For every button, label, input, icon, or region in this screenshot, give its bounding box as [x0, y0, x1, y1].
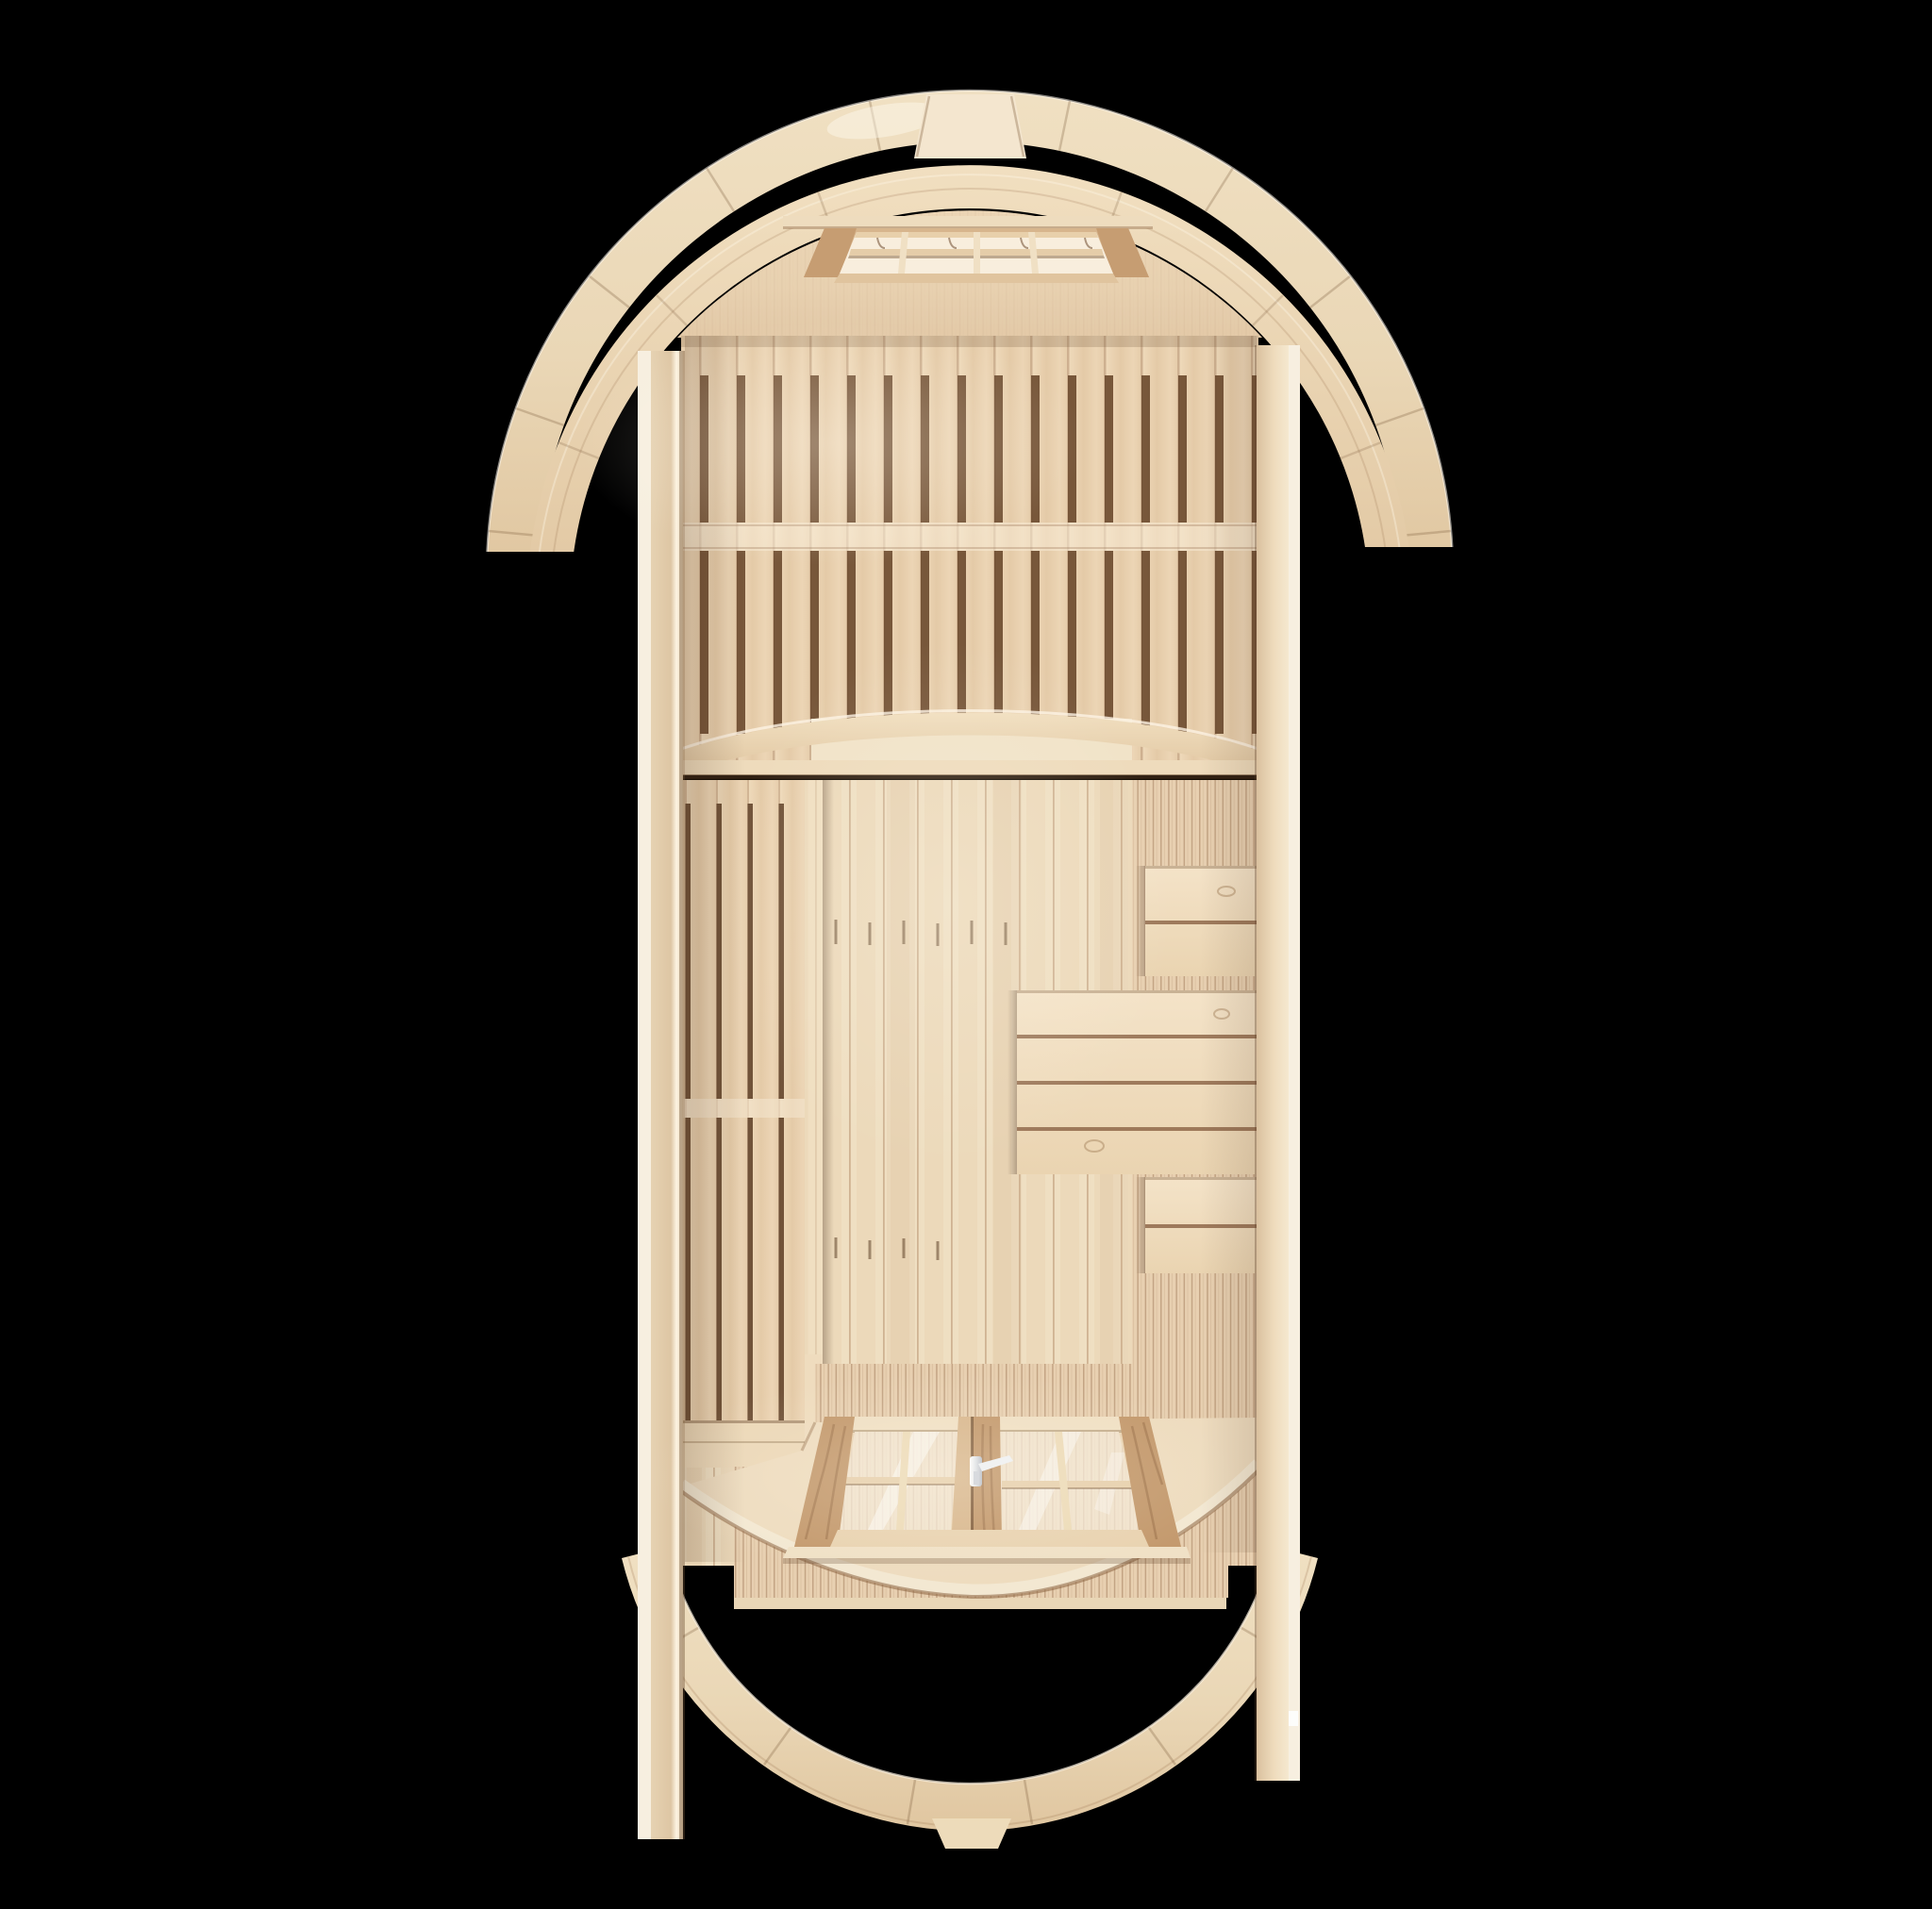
left-wall-white-edge — [638, 351, 651, 1839]
skylight — [783, 216, 1153, 283]
left-wall-board — [651, 351, 683, 1839]
left-wall-inner-seam — [679, 351, 685, 1839]
mask-right — [1300, 547, 1932, 1556]
front-band-bottom-strip — [734, 1598, 1226, 1609]
skylight-bar-2 — [974, 232, 980, 274]
right-wall-board — [1257, 345, 1291, 1781]
right-wall-white-edge — [1289, 345, 1300, 1781]
apex-cap-block — [914, 94, 1026, 158]
bench-shadow — [1136, 1177, 1145, 1273]
highlight-sauna-room — [575, 321, 1085, 566]
highlight-platform — [641, 1372, 1245, 1580]
highlight-changing-room — [722, 641, 1174, 1170]
sauna-top-view-render — [0, 0, 1932, 1909]
right-wall-strip — [1255, 345, 1300, 1781]
left-wall-strip — [638, 351, 685, 1839]
right-wall-notch — [1289, 1711, 1298, 1726]
interior-right-shadow — [1200, 336, 1257, 1552]
front-ring-cap — [932, 1818, 1011, 1849]
skylight-sill — [834, 274, 1119, 283]
mask-left — [0, 552, 640, 1561]
